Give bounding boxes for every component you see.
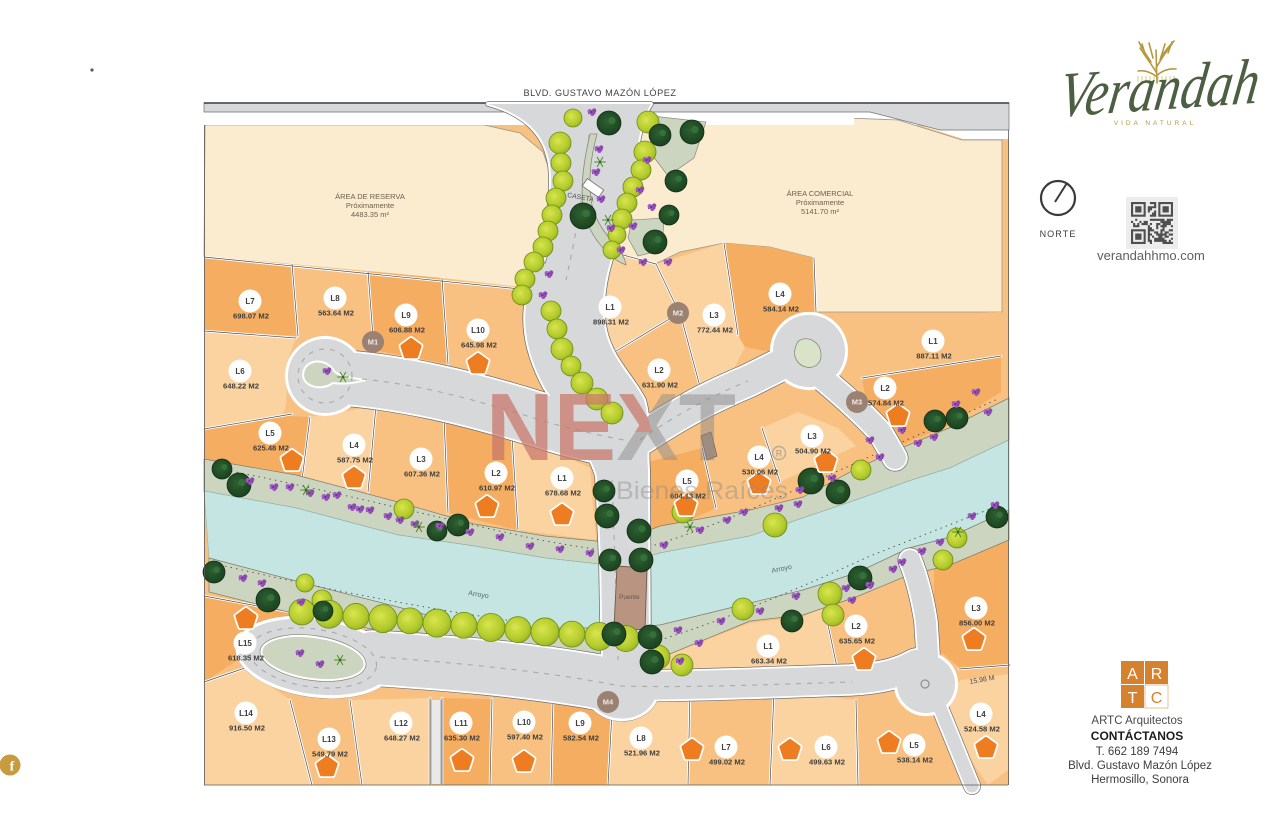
svg-text:verandahhmo.com: verandahhmo.com: [1097, 248, 1205, 263]
svg-text:4483.35 m²: 4483.35 m²: [351, 210, 389, 219]
svg-text:ARTC Arquitectos: ARTC Arquitectos: [1091, 715, 1182, 727]
svg-text:BLVD. GUSTAVO MAZÓN LÓPEZ: BLVD. GUSTAVO MAZÓN LÓPEZ: [524, 88, 677, 98]
svg-text:L1: L1: [605, 303, 615, 312]
svg-text:663.34 M2: 663.34 M2: [751, 657, 787, 666]
svg-text:L2: L2: [851, 622, 861, 631]
svg-text:CONTÁCTANOS: CONTÁCTANOS: [1091, 728, 1183, 743]
svg-text:T: T: [1128, 690, 1138, 707]
svg-text:L3: L3: [709, 311, 719, 320]
svg-text:524.58 M2: 524.58 M2: [964, 725, 1000, 734]
svg-text:635.65 M2: 635.65 M2: [839, 637, 875, 646]
svg-text:Verandah: Verandah: [1055, 45, 1265, 131]
svg-text:625.48 M2: 625.48 M2: [253, 444, 289, 453]
svg-text:698.07 M2: 698.07 M2: [233, 312, 269, 321]
svg-text:597.40 M2: 597.40 M2: [507, 733, 543, 742]
svg-text:648.22 M2: 648.22 M2: [223, 382, 259, 391]
svg-text:645.98 M2: 645.98 M2: [461, 341, 497, 350]
svg-text:ÁREA COMERCIAL: ÁREA COMERCIAL: [787, 189, 854, 198]
svg-text:L4: L4: [754, 453, 764, 462]
svg-text:L5: L5: [265, 429, 275, 438]
svg-text:898.31 M2: 898.31 M2: [593, 318, 629, 327]
svg-text:ÁREA DE RESERVA: ÁREA DE RESERVA: [335, 192, 405, 201]
svg-text:678.68 M2: 678.68 M2: [545, 489, 581, 498]
svg-text:538.14 M2: 538.14 M2: [897, 756, 933, 765]
svg-text:584.14 M2: 584.14 M2: [763, 305, 799, 314]
svg-text:M4: M4: [603, 698, 614, 707]
svg-text:Hermosillo, Sonora: Hermosillo, Sonora: [1091, 774, 1189, 786]
svg-text:L14: L14: [239, 709, 253, 718]
svg-text:635.30 M2: 635.30 M2: [444, 734, 480, 743]
svg-text:887.11 M2: 887.11 M2: [916, 352, 951, 361]
svg-text:L7: L7: [721, 743, 731, 752]
svg-text:R: R: [776, 449, 783, 459]
svg-text:563.64 M2: 563.64 M2: [318, 309, 354, 318]
svg-text:772.44 M2: 772.44 M2: [697, 326, 733, 335]
svg-text:5141.70 m²: 5141.70 m²: [801, 207, 839, 216]
svg-text:499.63 M2: 499.63 M2: [809, 758, 845, 767]
svg-text:L10: L10: [471, 326, 485, 335]
svg-text:916.50 M2: 916.50 M2: [229, 724, 265, 733]
svg-text:L15: L15: [238, 639, 252, 648]
svg-text:L4: L4: [775, 290, 785, 299]
svg-text:L7: L7: [245, 297, 255, 306]
svg-text:549.79 M2: 549.79 M2: [312, 750, 348, 759]
svg-text:521.96 M2: 521.96 M2: [624, 749, 660, 758]
svg-text:610.97 M2: 610.97 M2: [479, 484, 515, 493]
svg-text:L6: L6: [235, 367, 245, 376]
svg-text:618.35 M2: 618.35 M2: [228, 654, 264, 663]
svg-text:M3: M3: [852, 398, 862, 407]
svg-text:856.00 M2: 856.00 M2: [959, 619, 995, 628]
svg-text:499.02 M2: 499.02 M2: [709, 758, 745, 767]
svg-text:606.88 M2: 606.88 M2: [389, 326, 425, 335]
svg-text:Puente: Puente: [619, 594, 640, 601]
svg-text:L4: L4: [349, 441, 359, 450]
svg-text:504.90 M2: 504.90 M2: [795, 447, 831, 456]
svg-text:Blvd. Gustavo Mazón López: Blvd. Gustavo Mazón López: [1068, 760, 1212, 772]
svg-text:f: f: [10, 760, 15, 775]
svg-text:M1: M1: [368, 338, 378, 347]
svg-text:L10: L10: [517, 718, 531, 727]
svg-text:648.27 M2: 648.27 M2: [384, 734, 420, 743]
svg-text:T. 662 189 7494: T. 662 189 7494: [1096, 746, 1179, 758]
svg-text:L2: L2: [880, 384, 890, 393]
svg-text:582.54 M2: 582.54 M2: [563, 734, 599, 743]
svg-text:L9: L9: [575, 719, 585, 728]
svg-text:R: R: [1151, 666, 1163, 683]
svg-text:L3: L3: [807, 432, 817, 441]
svg-text:L3: L3: [971, 604, 981, 613]
svg-text:607.36 M2: 607.36 M2: [404, 470, 440, 479]
svg-text:L4: L4: [976, 710, 986, 719]
svg-text:L8: L8: [330, 294, 340, 303]
svg-text:Próximamente: Próximamente: [346, 201, 394, 210]
svg-text:L1: L1: [763, 642, 773, 651]
svg-text:L12: L12: [394, 719, 408, 728]
svg-text:L13: L13: [322, 735, 336, 744]
svg-text:L3: L3: [416, 455, 426, 464]
svg-text:Próximamente: Próximamente: [796, 198, 844, 207]
svg-text:574.84 M2: 574.84 M2: [868, 399, 904, 408]
svg-text:A: A: [1127, 666, 1138, 683]
svg-text:L11: L11: [454, 719, 468, 728]
svg-text:Bienes Raíces: Bienes Raíces: [616, 477, 788, 505]
svg-text:587.75 M2: 587.75 M2: [337, 456, 373, 465]
svg-text:VIDA NATURAL: VIDA NATURAL: [1114, 120, 1196, 127]
svg-text:C: C: [1151, 690, 1163, 707]
svg-text:L8: L8: [636, 734, 646, 743]
svg-text:530.06 M2: 530.06 M2: [742, 468, 778, 477]
svg-text:L5: L5: [909, 741, 919, 750]
svg-text:L6: L6: [821, 743, 831, 752]
svg-text:NORTE: NORTE: [1040, 229, 1077, 239]
svg-text:L1: L1: [928, 337, 938, 346]
svg-text:M2: M2: [673, 309, 683, 318]
svg-text:L9: L9: [401, 311, 411, 320]
